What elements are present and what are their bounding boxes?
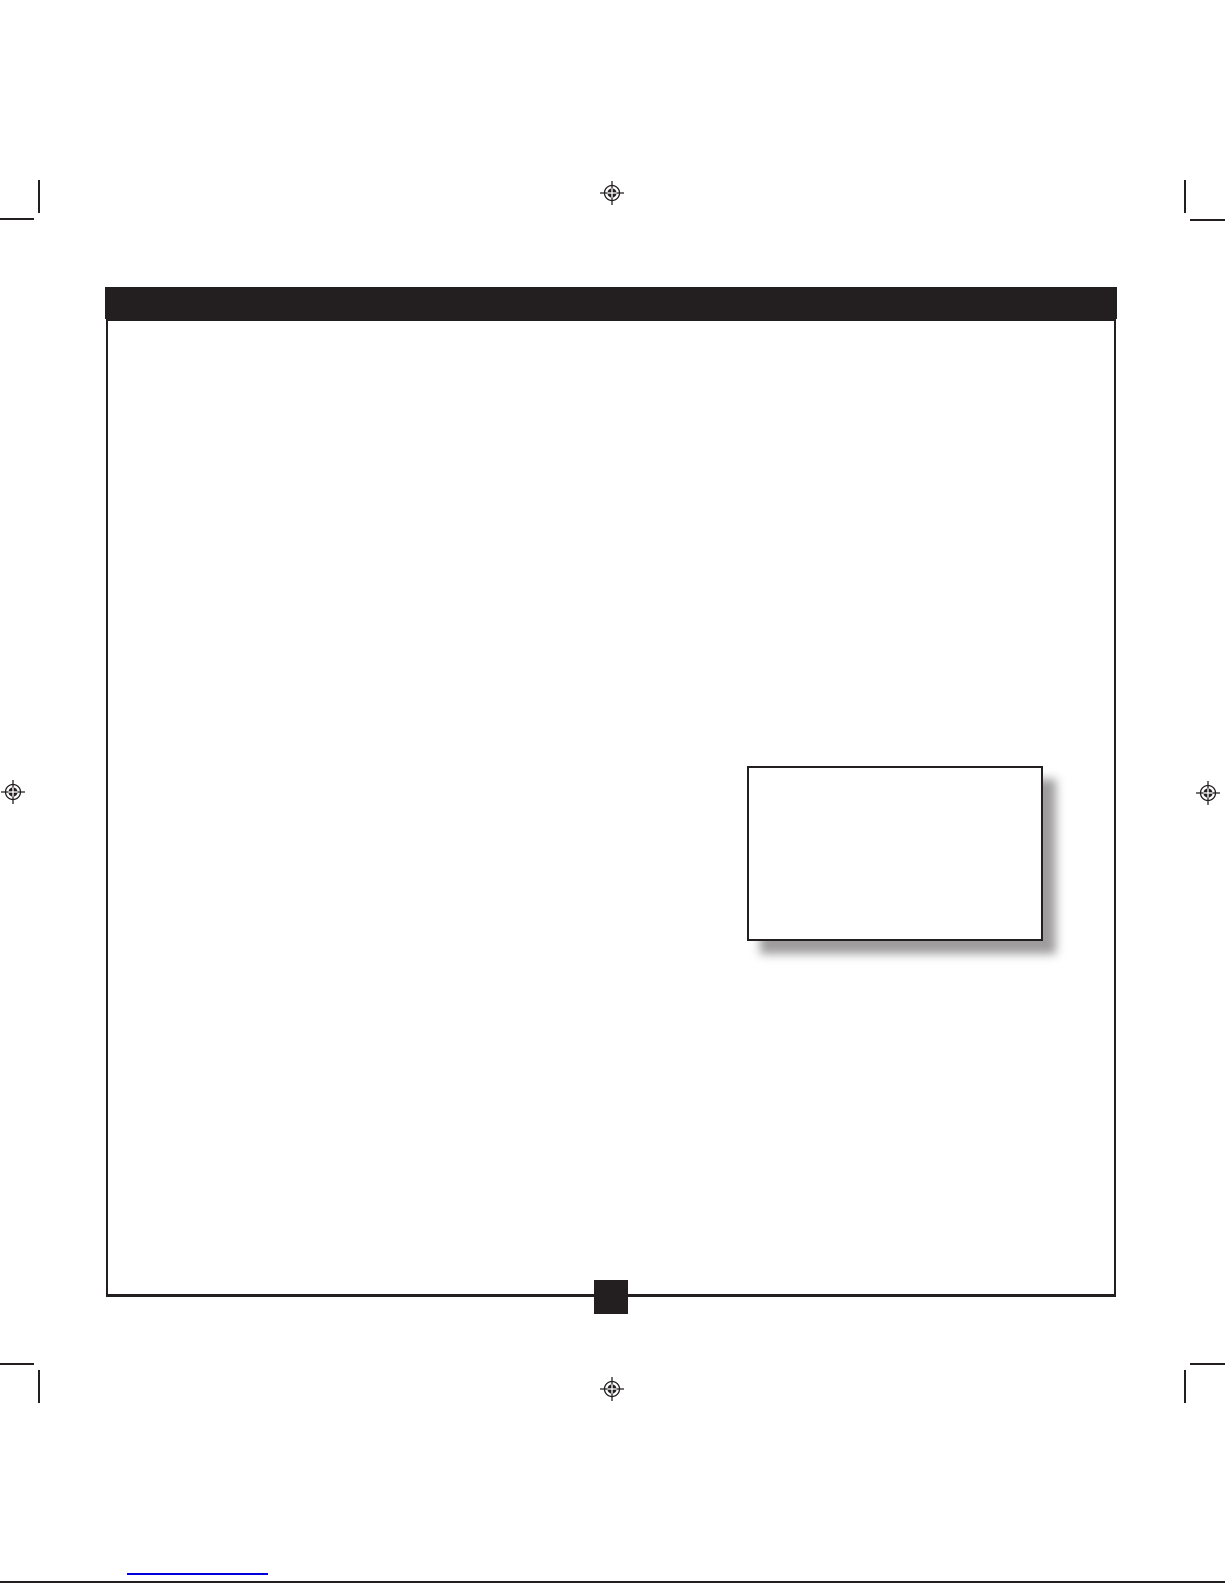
crop-mark-icon: [1190, 1363, 1225, 1365]
crop-mark-icon: [1184, 1370, 1186, 1403]
section-header-bar: [105, 287, 1117, 319]
footer-link[interactable]: [127, 1573, 268, 1575]
scanned-document-page: [0, 0, 1225, 1585]
registration-mark-icon: [1193, 778, 1223, 808]
crop-mark-icon: [1190, 219, 1225, 221]
crop-mark-icon: [0, 1363, 34, 1365]
crop-mark-icon: [1184, 180, 1186, 213]
crop-mark-icon: [0, 218, 34, 220]
bottom-rule: [0, 1581, 1225, 1583]
registration-mark-icon: [597, 1374, 627, 1404]
registration-mark-icon: [0, 777, 28, 807]
crop-mark-icon: [38, 1370, 40, 1403]
crop-mark-icon: [38, 180, 40, 213]
registration-mark-icon: [597, 178, 627, 208]
page-number-box: [594, 1280, 628, 1314]
callout-box: [747, 766, 1043, 941]
